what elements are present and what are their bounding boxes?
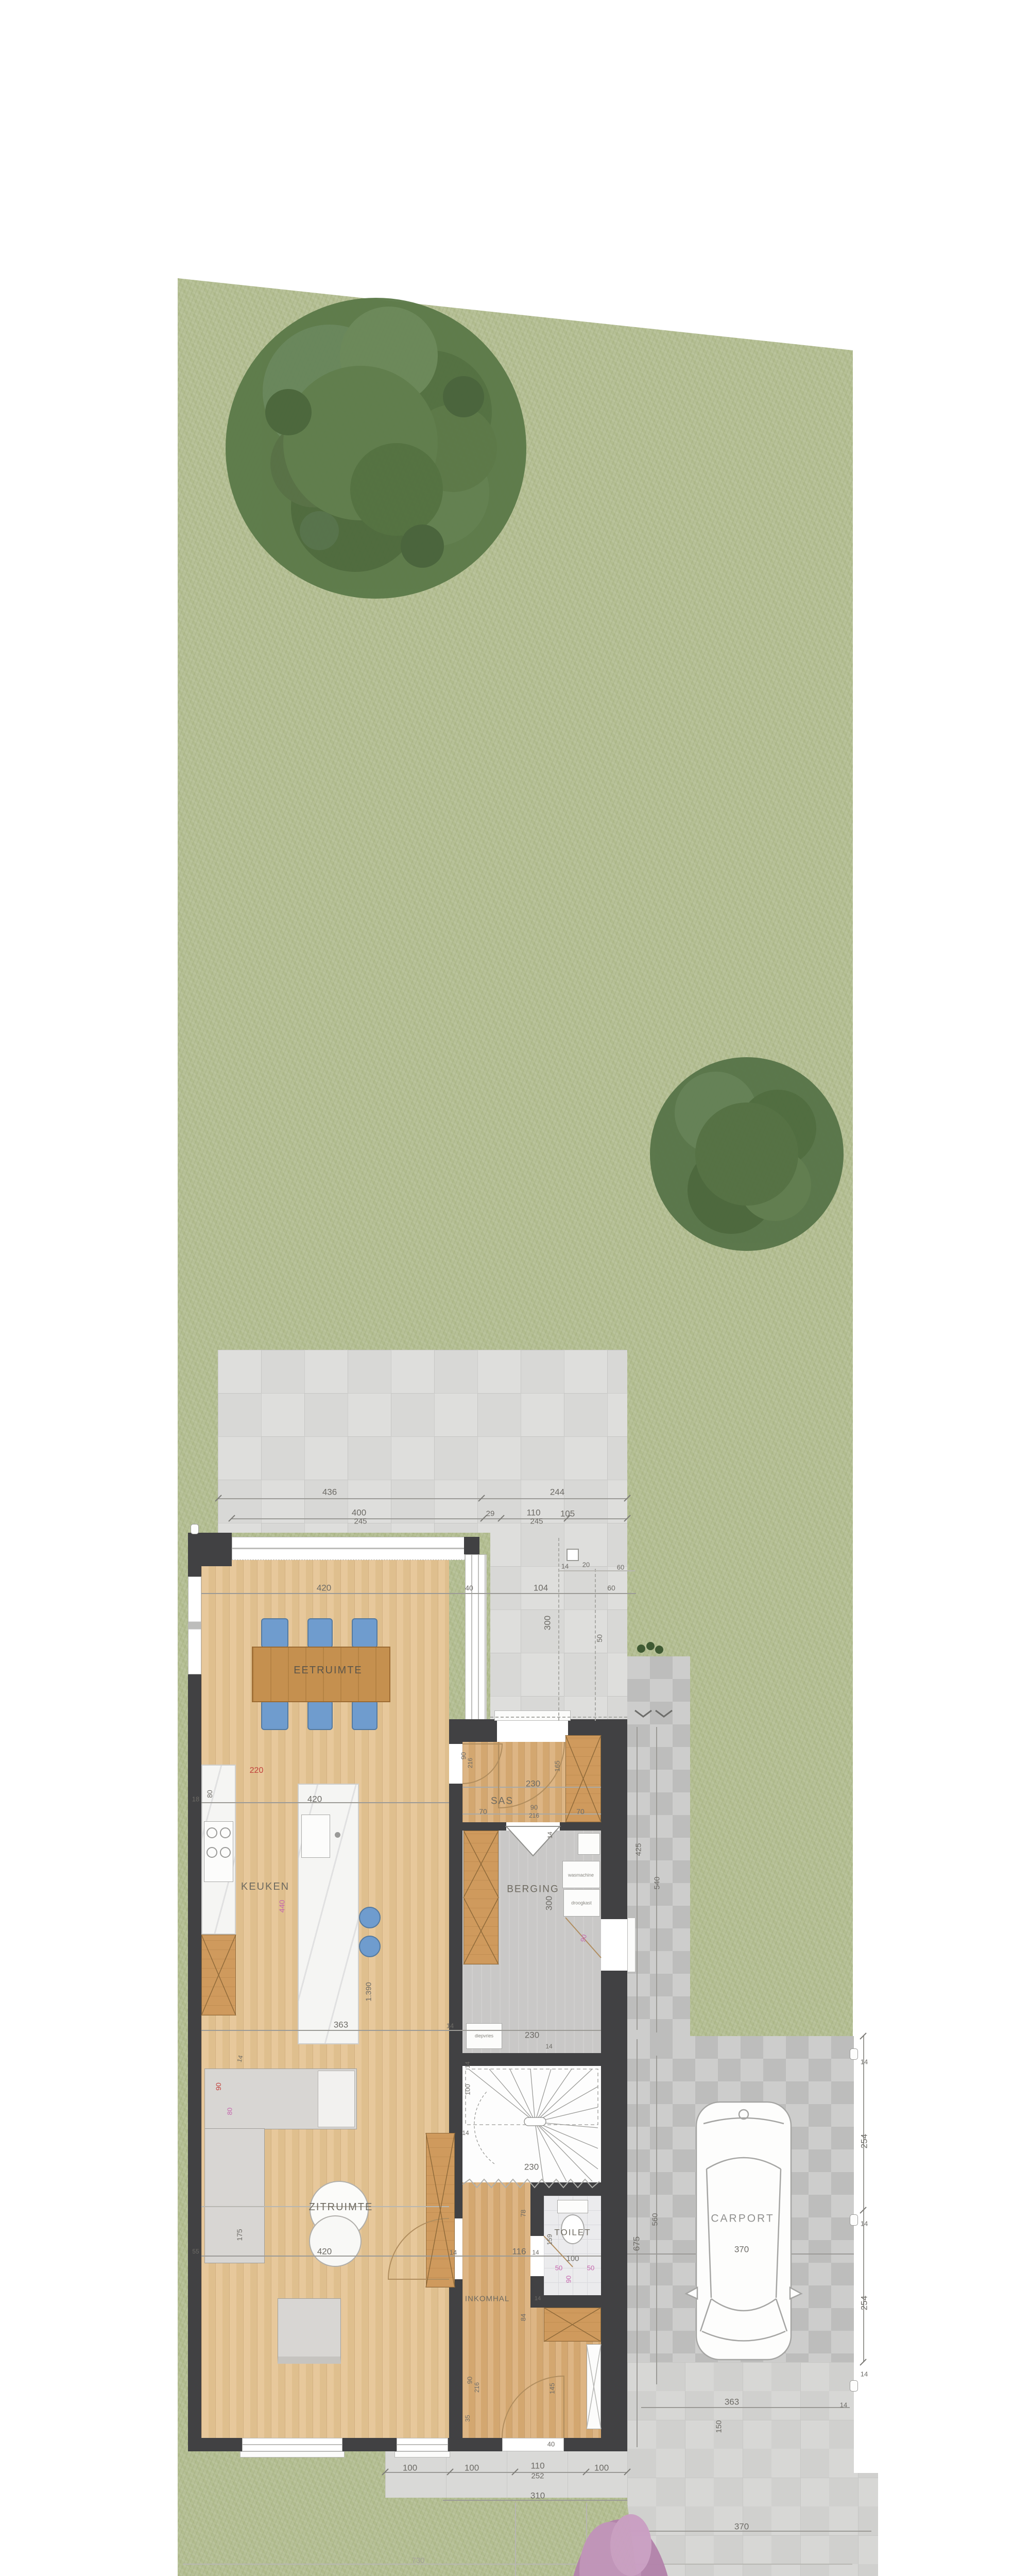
- dim-label: 675: [632, 2236, 641, 2251]
- dim-label: 440: [279, 1900, 286, 1912]
- dim-label: 254: [860, 2296, 869, 2310]
- dim-label: 100: [566, 2255, 579, 2263]
- room-label-zitruimte: ZITRUIMTE: [309, 2202, 373, 2212]
- dim-label: 363: [725, 2398, 739, 2406]
- dim-label: 116: [512, 2247, 526, 2256]
- dim-label: 50: [587, 2265, 594, 2272]
- dim-label: 14: [532, 2249, 539, 2256]
- dim-label: 55: [192, 2248, 199, 2255]
- dim-label: 14: [450, 2249, 457, 2256]
- room-label-sas: SAS: [491, 1797, 513, 1806]
- dim-label: 14: [447, 2023, 454, 2029]
- label-droogkast: droogkast: [571, 1901, 592, 1906]
- dim-label: 310: [530, 2492, 545, 2500]
- dim-label: 40: [465, 1584, 473, 1591]
- dim-label: 14: [535, 2296, 541, 2302]
- dim-label: 230: [524, 2163, 539, 2172]
- dim-label: 560: [651, 2213, 659, 2226]
- dim-label: 370: [734, 2522, 749, 2531]
- dim-label: 14: [861, 2059, 868, 2065]
- dim-label: 230: [525, 2031, 539, 2040]
- dim-label: 100: [465, 2464, 479, 2472]
- dim-label: 18: [192, 1796, 199, 1803]
- dim-label: 80: [227, 2108, 233, 2115]
- dim-label: 300: [545, 1896, 554, 1910]
- dim-label: 14: [861, 2221, 868, 2227]
- dim-label: 90: [460, 1752, 467, 1759]
- dim-label: 730: [411, 2557, 424, 2565]
- dim-label: 216: [467, 1758, 473, 1768]
- dim-label: 100: [403, 2464, 417, 2472]
- dim-label: 245: [354, 1518, 367, 1526]
- room-label-keuken: KEUKEN: [241, 1882, 289, 1892]
- dim-label: 14: [561, 1563, 569, 1570]
- dim-label: 70: [576, 1808, 585, 1815]
- dim-label: 110: [526, 1509, 540, 1517]
- dim-label: 1.390: [365, 1982, 373, 2002]
- dim-label: 400: [352, 1509, 366, 1517]
- dim-label: 425: [635, 1843, 643, 1856]
- dim-label: 175: [236, 2229, 243, 2241]
- room-label-eetruimte: EETRUIMTE: [294, 1665, 363, 1675]
- dim-label: 20: [582, 1562, 590, 1568]
- dim-label: 100: [465, 2084, 471, 2095]
- dim-label: 14: [547, 1832, 553, 1838]
- dim-label: 14: [236, 2055, 244, 2063]
- dim-label: 80: [206, 1790, 213, 1798]
- dim-label: 420: [317, 2247, 332, 2256]
- room-label-berging: BERGING: [507, 1885, 559, 1894]
- dim-label: 150: [715, 2420, 723, 2433]
- room-label-toilet: TOILET: [554, 2228, 591, 2237]
- dim-label: 14: [545, 2043, 552, 2049]
- dim-label: 254: [860, 2134, 869, 2148]
- dim-label: 420: [307, 1795, 322, 1804]
- dim-label: 14: [840, 2402, 847, 2409]
- dim-label: 104: [534, 1584, 548, 1592]
- dim-label: 216: [474, 2382, 480, 2393]
- dim-label: 363: [334, 2021, 348, 2029]
- label-wasmachine: wasmachine: [568, 1873, 594, 1878]
- dim-label: 300: [543, 1616, 552, 1630]
- dim-label: 100: [594, 2464, 609, 2472]
- dim-label: 105: [560, 1510, 575, 1518]
- dim-label: 245: [530, 1518, 543, 1526]
- dim-label: 84: [520, 2314, 527, 2321]
- dim-label: 50: [596, 1634, 603, 1642]
- dim-label: 60: [607, 1584, 615, 1591]
- dim-label: 90: [579, 1934, 588, 1942]
- dim-label: 540: [654, 1876, 661, 1889]
- label-diepvries: diepvries: [475, 2034, 493, 2039]
- dim-label: 14: [462, 2130, 469, 2136]
- dim-label: 29: [486, 1510, 495, 1518]
- dim-label: 252: [531, 2472, 544, 2480]
- dim-label: 78: [520, 2210, 527, 2217]
- dim-label: 159: [546, 2234, 553, 2245]
- annotation-labels: 4362444002452911024510514206042040104603…: [0, 0, 1030, 2576]
- dim-label: 35: [465, 2415, 471, 2421]
- dim-label: 216: [529, 1812, 539, 1819]
- dim-label: 145: [549, 2383, 556, 2394]
- dim-label: 220: [250, 1767, 264, 1775]
- dim-label: 230: [526, 1780, 540, 1788]
- room-label-inkomhal: INKOMHAL: [465, 2295, 509, 2303]
- dim-label: 90: [215, 2082, 222, 2091]
- dim-label: 90: [565, 2276, 572, 2283]
- dim-label: 110: [530, 2462, 544, 2470]
- dim-label: 420: [317, 1584, 331, 1592]
- dim-label: 244: [550, 1488, 564, 1497]
- dim-label: 370: [734, 2245, 749, 2254]
- dim-label: 70: [479, 1808, 487, 1815]
- dim-label: 40: [547, 2441, 555, 2448]
- dim-label: 14: [465, 2061, 471, 2068]
- site-plan-canvas: 4362444002452911024510514206042040104603…: [0, 0, 1030, 2576]
- dim-label: 165: [554, 1760, 561, 1772]
- room-label-carport: CARPORT: [711, 2213, 774, 2224]
- dim-label: 90: [530, 1804, 538, 1811]
- dim-label: 14: [861, 2371, 868, 2378]
- dim-label: 60: [617, 1564, 624, 1571]
- dim-label: 436: [322, 1488, 337, 1497]
- dim-label: 90: [467, 2377, 473, 2384]
- dim-label: 50: [555, 2265, 562, 2272]
